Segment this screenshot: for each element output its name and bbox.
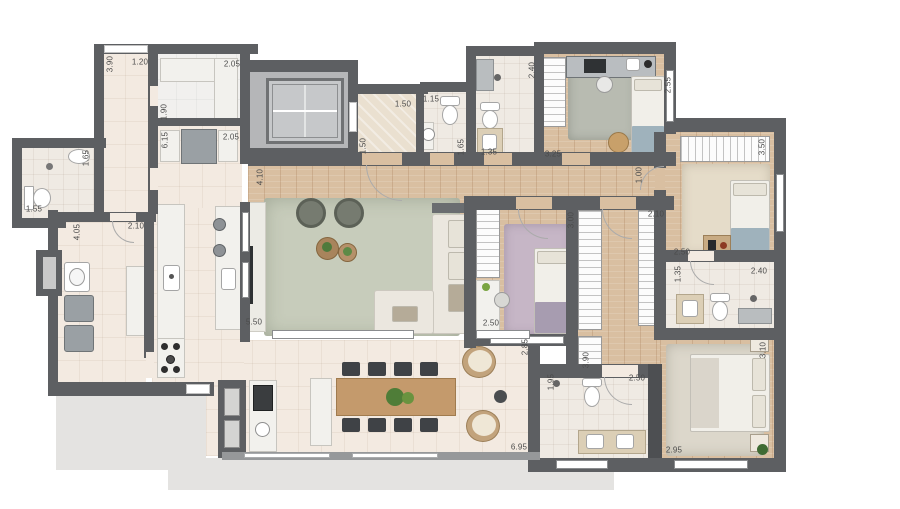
dimension-label: 3.00 xyxy=(567,212,576,228)
dimension-label: 3.10 xyxy=(759,342,768,358)
dimension-label: 2.95 xyxy=(666,446,682,455)
dimension-label: 3.90 xyxy=(582,352,591,368)
dimension-label: 2.50 xyxy=(629,374,645,383)
dimension-label: 2.40 xyxy=(528,62,537,78)
dimension-label: 1.15 xyxy=(423,95,439,104)
dimension-label: 4.10 xyxy=(256,169,265,185)
dimension-label: 1.50 xyxy=(395,100,411,109)
dimension-label: 2.10 xyxy=(128,222,144,231)
dimension-label: 6.95 xyxy=(511,443,527,452)
dimension-labels-layer: 3.901.202.051.906.152.051.651.554.052.10… xyxy=(0,0,900,509)
dimension-label: 2.05 xyxy=(224,60,240,69)
dimension-label: 1.35 xyxy=(481,148,497,157)
dimension-label: 1.65 xyxy=(82,150,91,166)
dimension-label: 1.65 xyxy=(457,139,466,155)
dimension-label: 2.05 xyxy=(223,133,239,142)
dimension-label: 6.15 xyxy=(161,132,170,148)
dimension-label: 1.90 xyxy=(160,104,169,120)
dimension-label: 5.50 xyxy=(246,318,262,327)
dimension-label: 4.05 xyxy=(73,224,82,240)
dimension-label: 2.40 xyxy=(751,267,767,276)
dimension-label: 3.50 xyxy=(758,139,767,155)
dimension-label: 3.90 xyxy=(106,56,115,72)
dimension-label: 2.10 xyxy=(648,210,664,219)
dimension-label: 3.25 xyxy=(545,150,561,159)
dimension-label: 2.85 xyxy=(521,339,530,355)
dimension-label: 2.55 xyxy=(664,77,673,93)
dimension-label: 1.35 xyxy=(674,266,683,282)
dimension-label: 1.95 xyxy=(547,374,556,390)
dimension-label: 1.20 xyxy=(132,58,148,67)
dimension-label: 2.50 xyxy=(483,319,499,328)
dimension-label: 2.50 xyxy=(674,248,690,257)
floor-plan: 3.901.202.051.906.152.051.651.554.052.10… xyxy=(0,0,900,509)
dimension-label: 1.50 xyxy=(359,138,368,154)
dimension-label: 1.00 xyxy=(635,167,644,183)
dimension-label: 1.55 xyxy=(26,205,42,214)
